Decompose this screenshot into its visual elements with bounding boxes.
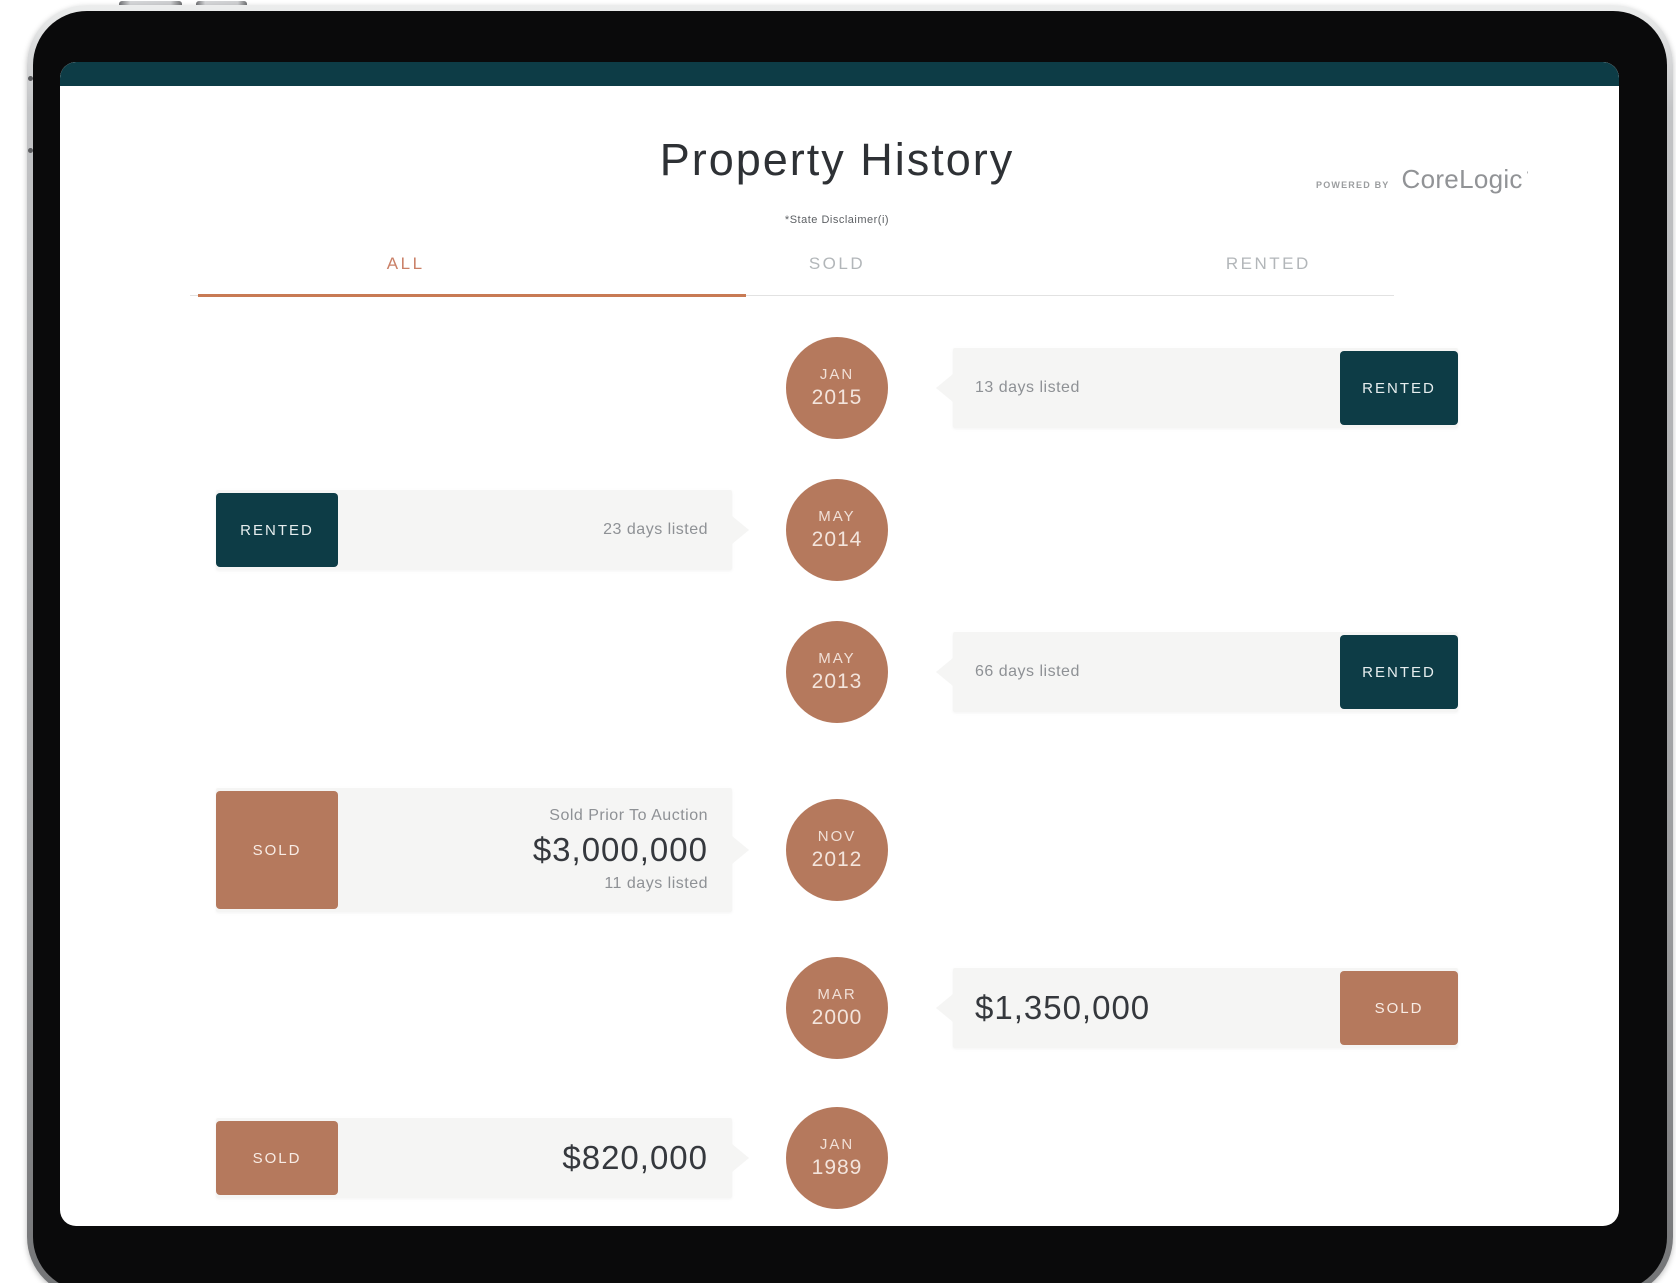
detail-text: 23 days listed [603,521,708,539]
price-text: $3,000,000 [533,831,708,869]
card-text: $1,350,000 [953,989,1150,1027]
event-card: $820,000SOLD [216,1118,732,1198]
date-circle: MAY2014 [786,479,888,581]
trademark-mark: ' [1527,170,1529,180]
status-badge: SOLD [216,791,338,909]
date-circle: NOV2012 [786,799,888,901]
date-year: 2014 [812,528,863,552]
event-card: Sold Prior To Auction$3,000,00011 days l… [216,788,732,912]
stage: Property History *State Disclaimer(i) PO… [0,0,1676,1283]
powered-by-label: POWERED BY [1316,180,1390,190]
status-badge: SOLD [216,1121,338,1195]
detail-text: 66 days listed [975,663,1080,681]
corelogic-logo: CoreLogic [1402,164,1523,195]
status-badge: RENTED [1340,635,1458,709]
microphone-dot [28,148,33,153]
status-badge: RENTED [216,493,338,567]
date-year: 2013 [812,670,863,694]
date-circle: JAN1989 [786,1107,888,1209]
status-badge: RENTED [1340,351,1458,425]
price-text: $820,000 [562,1139,708,1177]
tab-all[interactable]: ALL [190,238,621,296]
card-text: Sold Prior To Auction$3,000,00011 days l… [533,807,732,893]
detail-text: 13 days listed [975,379,1080,397]
date-month: JAN [820,1136,854,1153]
date-year: 1989 [812,1156,863,1180]
card-text: 13 days listed [953,379,1080,397]
event-card: 66 days listedRENTED [953,632,1458,712]
date-year: 2000 [812,1006,863,1030]
tab-rented[interactable]: RENTED [1053,238,1484,296]
status-badge: SOLD [1340,971,1458,1045]
powered-by-corelogic: POWERED BY CoreLogic ' [1316,164,1536,195]
date-month: MAR [817,986,856,1003]
date-circle: JAN2015 [786,337,888,439]
event-card: $1,350,000SOLD [953,968,1458,1048]
screen: Property History *State Disclaimer(i) PO… [60,62,1619,1226]
card-text: $820,000 [562,1139,732,1177]
date-month: NOV [818,828,857,845]
date-circle: MAY2013 [786,621,888,723]
card-text: 23 days listed [603,521,732,539]
event-card: 13 days listedRENTED [953,348,1458,428]
price-text: $1,350,000 [975,989,1150,1027]
detail-text: 11 days listed [604,875,708,893]
status-bar [60,62,1619,86]
date-month: MAY [818,508,855,525]
card-text: 66 days listed [953,663,1080,681]
detail-text: Sold Prior To Auction [549,807,708,825]
date-year: 2015 [812,386,863,410]
date-circle: MAR2000 [786,957,888,1059]
event-card: 23 days listedRENTED [216,490,732,570]
date-year: 2012 [812,848,863,872]
state-disclaimer-link[interactable]: *State Disclaimer(i) [60,214,1614,226]
microphone-dot [28,76,33,81]
tab-sold[interactable]: SOLD [621,238,1052,296]
tabs: ALLSOLDRENTED [190,238,1484,296]
date-month: MAY [818,650,855,667]
date-month: JAN [820,366,854,383]
